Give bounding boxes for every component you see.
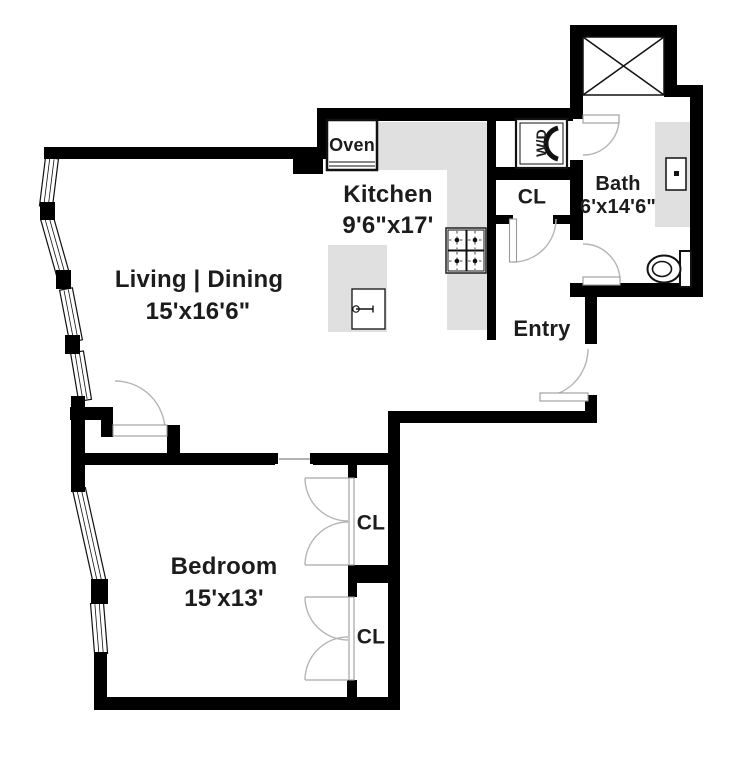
floor-plan: Oven Kitchen 9'6"x17' W/D CL Bath 6'x14'…	[0, 0, 739, 768]
bedroom-door	[113, 381, 167, 436]
bedroom-window-wall	[73, 488, 108, 655]
bedroom-closet-bottom-label: CL	[357, 627, 385, 648]
toilet	[648, 251, 692, 287]
oven-label: Oven	[329, 136, 375, 154]
bath-door	[583, 244, 620, 285]
laundry-bath-door	[583, 115, 619, 155]
bath-name: Bath	[595, 174, 640, 194]
kitchen-name: Kitchen	[343, 183, 432, 207]
entry-closet-door	[510, 219, 557, 262]
island-sink	[352, 289, 385, 329]
cooktop	[446, 228, 486, 273]
closet-french-doors-top	[305, 478, 354, 565]
bedroom-dims: 15'x13'	[184, 587, 264, 611]
apartment-entry-door	[540, 349, 588, 401]
vanity-sink	[666, 158, 686, 190]
closet-french-doors-bottom	[305, 597, 354, 680]
kitchen-dims: 9'6"x17'	[342, 214, 433, 238]
bedroom-closet-top-label: CL	[357, 513, 385, 534]
entry-closet-label: CL	[518, 187, 546, 208]
washer-dryer-label: W/D	[534, 129, 548, 157]
bath-dims: 6'x14'6"	[580, 197, 656, 217]
entry-name: Entry	[513, 318, 570, 340]
shaft-x-box	[583, 37, 664, 95]
bedroom-name: Bedroom	[171, 555, 278, 579]
floor-plan-drawing	[0, 0, 739, 768]
living-name: Living | Dining	[115, 268, 283, 292]
living-dims: 15'x16'6"	[146, 300, 251, 324]
